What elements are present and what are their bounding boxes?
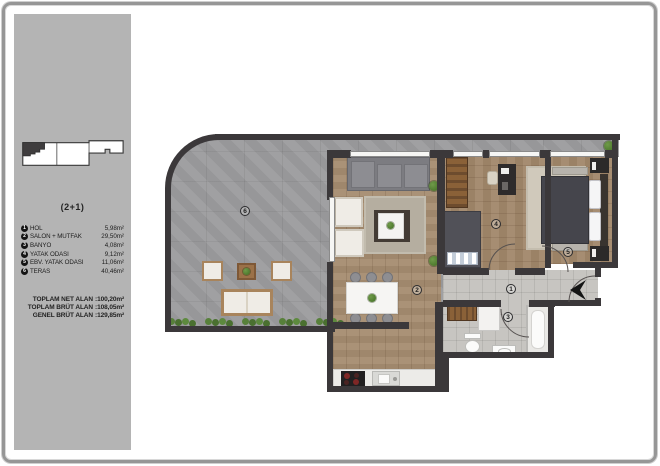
marker-hol: 1 — [506, 284, 516, 294]
marker-teras: 6 — [240, 206, 250, 216]
door-arcs — [0, 0, 660, 466]
marker-yatak-odasi: 4 — [491, 219, 501, 229]
marker-salon-mutfak: 2 — [412, 285, 422, 295]
marker-banyo: 3 — [503, 312, 513, 322]
entrance-arrow-icon — [566, 278, 588, 302]
floor-plan: 1 2 3 4 5 6 — [0, 0, 660, 466]
marker-ebv-yatak-odasi: 5 — [563, 247, 573, 257]
